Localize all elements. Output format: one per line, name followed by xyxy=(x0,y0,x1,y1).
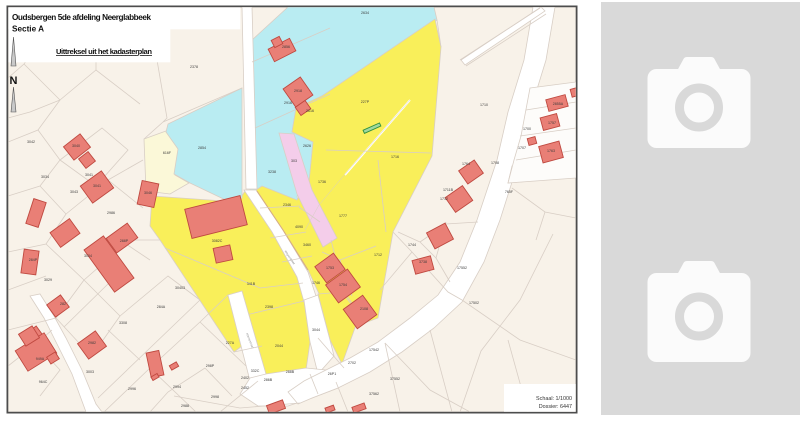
svg-text:N: N xyxy=(10,75,18,87)
svg-text:3738: 3738 xyxy=(419,260,427,264)
svg-text:2626: 2626 xyxy=(303,144,311,148)
svg-text:1712: 1712 xyxy=(374,253,382,257)
svg-text:17552: 17552 xyxy=(457,266,467,270)
svg-text:286B: 286B xyxy=(264,378,273,382)
svg-text:2986: 2986 xyxy=(107,211,115,215)
svg-text:3043: 3043 xyxy=(70,190,78,194)
svg-text:3460: 3460 xyxy=(303,243,311,247)
svg-text:2982: 2982 xyxy=(88,341,96,345)
svg-text:1763: 1763 xyxy=(547,149,555,153)
svg-text:3044: 3044 xyxy=(312,328,320,332)
svg-text:1708: 1708 xyxy=(491,161,499,165)
svg-text:2988: 2988 xyxy=(181,404,189,408)
svg-text:2044: 2044 xyxy=(275,344,283,348)
svg-text:2998: 2998 xyxy=(211,395,219,399)
svg-text:3003: 3003 xyxy=(86,370,94,374)
svg-text:1700: 1700 xyxy=(523,127,531,131)
svg-text:3046: 3046 xyxy=(144,191,152,195)
svg-text:2634: 2634 xyxy=(361,11,369,15)
svg-text:3041: 3041 xyxy=(85,173,93,177)
svg-text:298P: 298P xyxy=(206,364,215,368)
svg-text:1711B: 1711B xyxy=(443,188,454,192)
svg-text:2854: 2854 xyxy=(198,146,206,150)
svg-text:1710: 1710 xyxy=(480,103,488,107)
svg-text:37562: 37562 xyxy=(369,392,379,396)
svg-text:37552: 37552 xyxy=(390,377,400,381)
svg-text:949A: 949A xyxy=(36,357,45,361)
svg-text:2452: 2452 xyxy=(241,386,249,390)
svg-text:3308: 3308 xyxy=(119,321,127,325)
svg-text:2378: 2378 xyxy=(190,65,198,69)
svg-text:2994: 2994 xyxy=(173,385,181,389)
svg-text:332C: 332C xyxy=(251,369,260,373)
svg-text:2616: 2616 xyxy=(306,109,314,113)
svg-text:1736: 1736 xyxy=(318,180,326,184)
svg-text:4090: 4090 xyxy=(295,225,303,229)
svg-text:3040: 3040 xyxy=(72,144,80,148)
svg-text:1777: 1777 xyxy=(339,214,347,218)
svg-text:1744: 1744 xyxy=(408,243,416,247)
svg-text:1712: 1712 xyxy=(440,197,448,201)
svg-text:3041: 3041 xyxy=(93,184,101,188)
svg-text:227P: 227P xyxy=(361,100,370,104)
svg-text:3082C: 3082C xyxy=(212,239,223,243)
svg-text:3042: 3042 xyxy=(27,140,35,144)
svg-text:282: 282 xyxy=(60,302,66,306)
svg-text:1764: 1764 xyxy=(462,162,470,166)
svg-text:2855A: 2855A xyxy=(553,102,564,106)
svg-text:1707: 1707 xyxy=(518,146,526,150)
svg-text:1754: 1754 xyxy=(339,283,347,287)
svg-text:Schaal: 1/1000: Schaal: 1/1000 xyxy=(536,396,572,402)
svg-text:2402: 2402 xyxy=(241,376,249,380)
svg-text:Dossier: 6447: Dossier: 6447 xyxy=(539,404,572,410)
svg-text:284A: 284A xyxy=(157,305,166,309)
svg-text:17502: 17502 xyxy=(469,301,479,305)
svg-text:2346: 2346 xyxy=(283,203,291,207)
svg-text:Sectie A: Sectie A xyxy=(12,25,44,34)
svg-text:2996: 2996 xyxy=(128,387,136,391)
svg-text:288B: 288B xyxy=(286,370,295,374)
svg-text:2918: 2918 xyxy=(294,89,302,93)
svg-text:3029: 3029 xyxy=(44,278,52,282)
svg-text:2856: 2856 xyxy=(282,45,290,49)
svg-text:3034: 3034 xyxy=(41,175,49,179)
svg-text:284P: 284P xyxy=(29,258,38,262)
svg-text:288P: 288P xyxy=(120,239,129,243)
svg-text:Oudsbergen 5de afdeling Neergl: Oudsbergen 5de afdeling Neerglabbeek xyxy=(12,13,151,22)
svg-text:341B: 341B xyxy=(247,282,256,286)
svg-text:1746: 1746 xyxy=(312,281,320,285)
svg-text:616F: 616F xyxy=(163,151,172,155)
svg-text:964C: 964C xyxy=(39,380,48,384)
svg-text:2702: 2702 xyxy=(348,361,356,365)
svg-text:17542: 17542 xyxy=(369,348,379,352)
svg-text:1716: 1716 xyxy=(391,155,399,159)
svg-text:2398: 2398 xyxy=(265,305,273,309)
svg-text:30403: 30403 xyxy=(175,286,185,290)
svg-text:303: 303 xyxy=(291,159,297,163)
svg-text:3004: 3004 xyxy=(84,254,92,258)
svg-text:Uittreksel uit het kadasterpla: Uittreksel uit het kadasterplan xyxy=(56,47,152,56)
svg-text:227A: 227A xyxy=(226,341,235,345)
svg-text:765F: 765F xyxy=(505,190,514,194)
svg-text:3238: 3238 xyxy=(268,170,276,174)
svg-text:1753: 1753 xyxy=(326,266,334,270)
svg-text:1757: 1757 xyxy=(548,121,556,125)
svg-text:26P1: 26P1 xyxy=(328,372,336,376)
svg-text:2916: 2916 xyxy=(284,101,292,105)
svg-text:2108: 2108 xyxy=(360,307,368,311)
